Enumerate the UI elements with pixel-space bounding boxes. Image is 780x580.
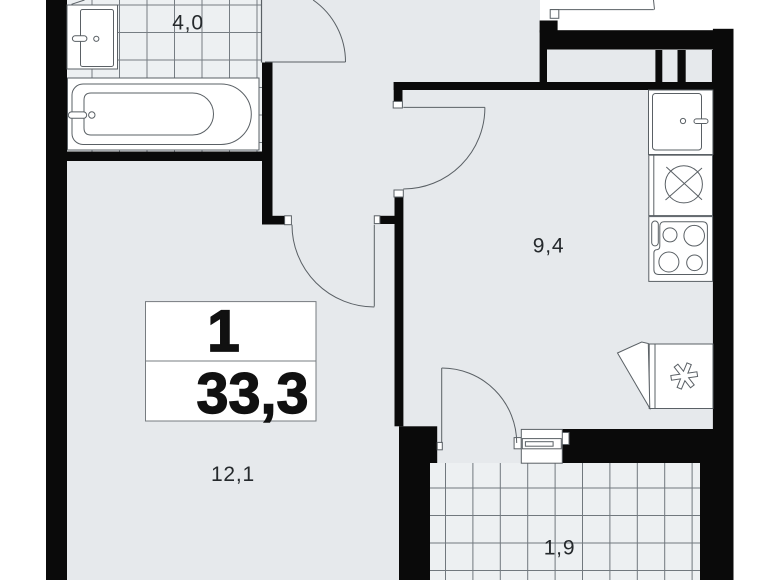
svg-text:1: 1	[207, 299, 239, 364]
svg-text:12,1: 12,1	[211, 463, 255, 486]
svg-text:4,0: 4,0	[172, 12, 204, 35]
svg-text:1,9: 1,9	[544, 537, 576, 560]
svg-text:9,4: 9,4	[533, 235, 565, 258]
svg-text:33,3: 33,3	[197, 362, 309, 426]
